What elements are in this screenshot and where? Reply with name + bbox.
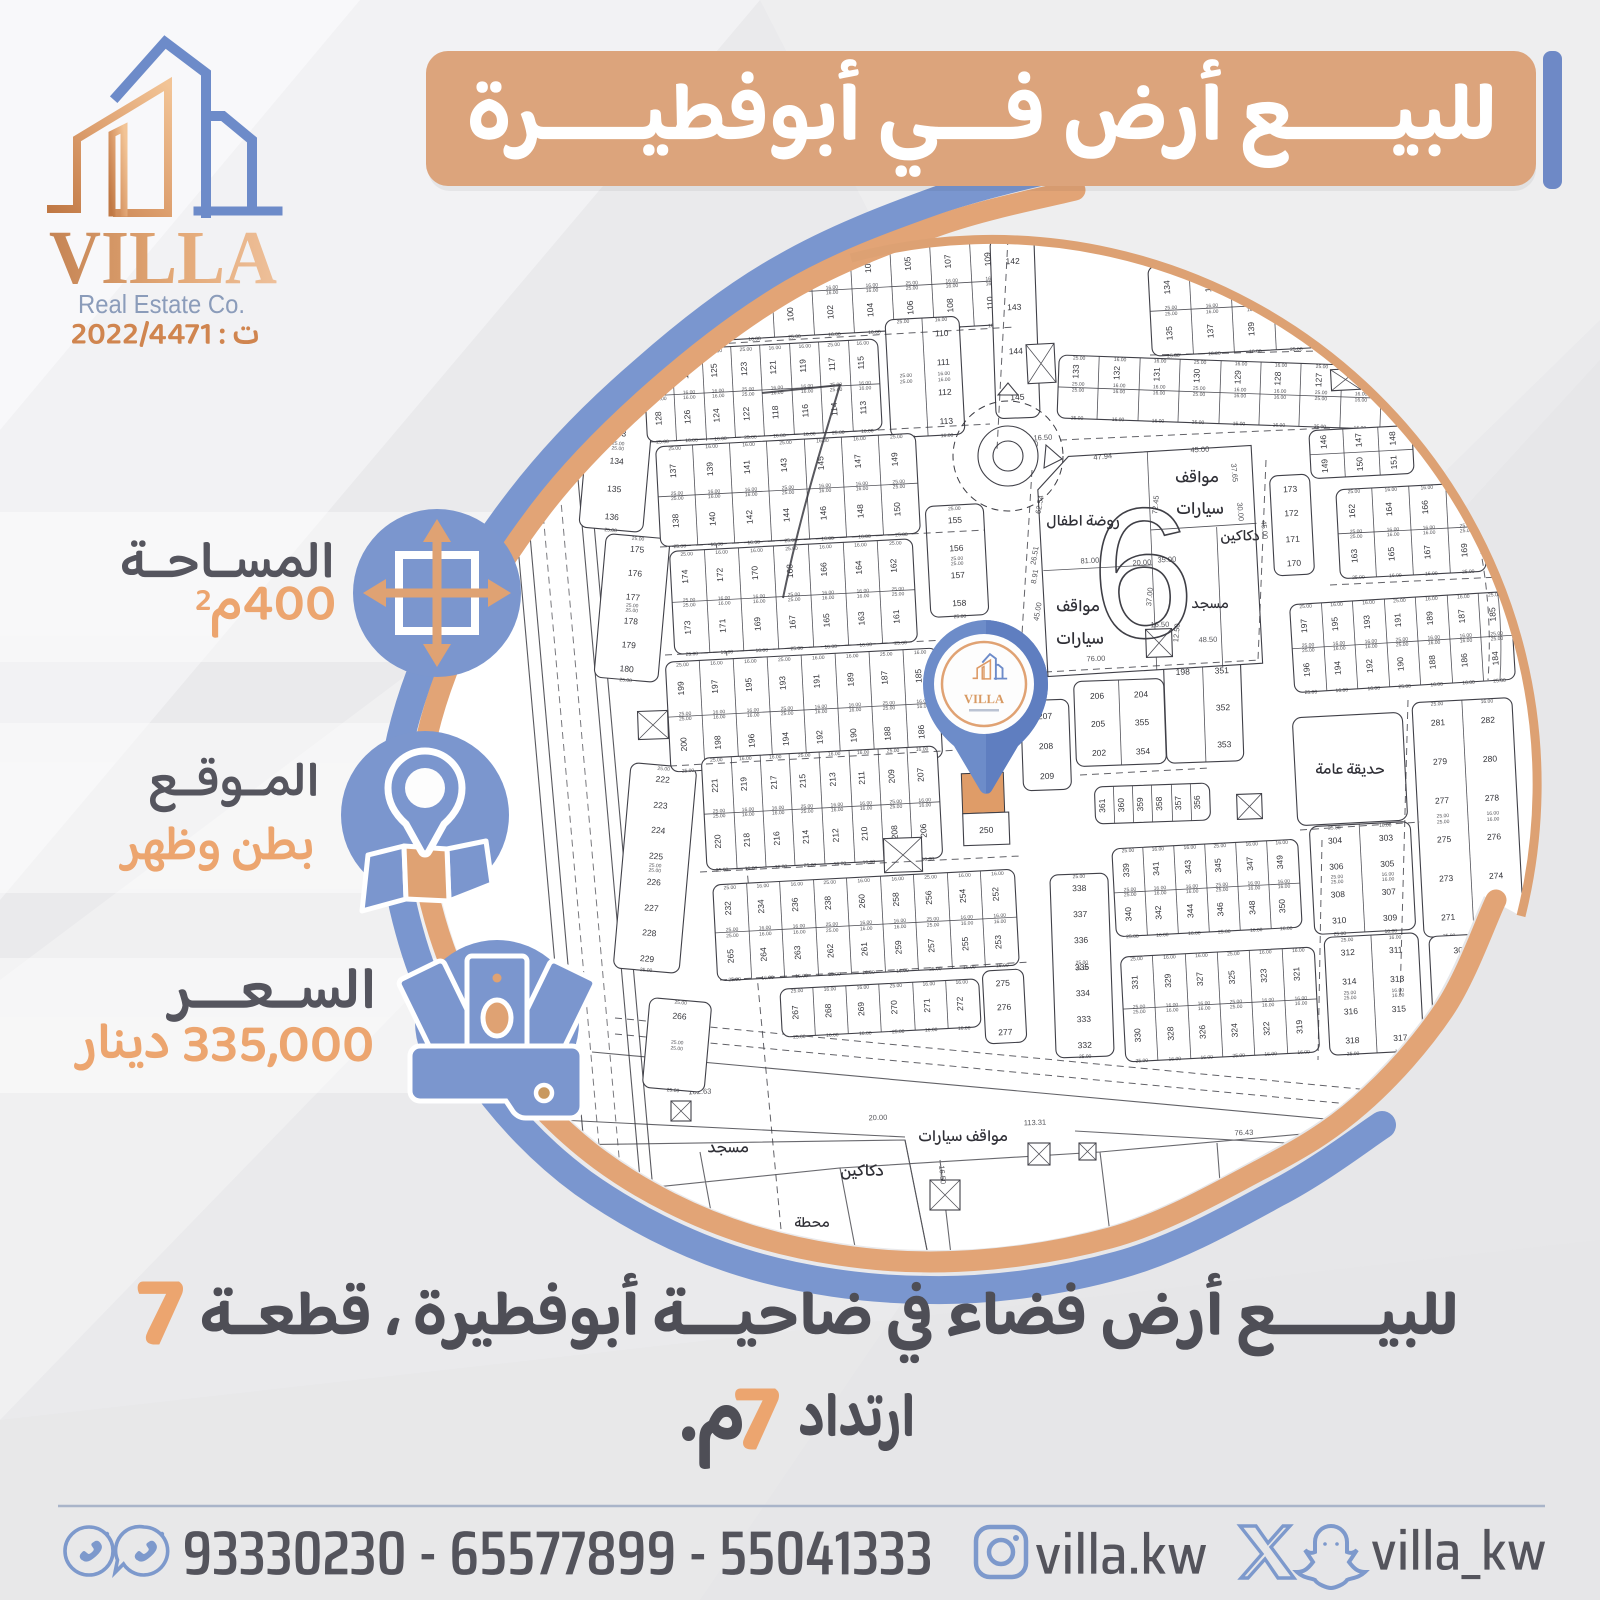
svg-text:25.00: 25.00 [657, 766, 670, 773]
svg-text:16.00: 16.00 [1428, 640, 1441, 647]
svg-text:115: 115 [855, 356, 866, 370]
svg-text:25.00: 25.00 [906, 285, 919, 292]
svg-text:25.00: 25.00 [1344, 995, 1357, 1002]
svg-text:187: 187 [879, 670, 890, 685]
svg-text:16.00: 16.00 [994, 919, 1007, 926]
svg-text:329: 329 [1162, 973, 1173, 988]
svg-text:25.00: 25.00 [880, 651, 893, 658]
svg-text:25.00: 25.00 [1072, 387, 1085, 393]
svg-text:25.00: 25.00 [1331, 879, 1344, 886]
svg-text:307: 307 [1381, 886, 1396, 897]
svg-text:16.00: 16.00 [1387, 532, 1400, 539]
svg-text:16.00: 16.00 [1333, 645, 1346, 652]
svg-text:16.00: 16.00 [1152, 846, 1165, 853]
svg-text:196: 196 [746, 733, 757, 748]
svg-text:45.00: 45.00 [1190, 445, 1209, 455]
svg-text:16.00: 16.00 [1233, 421, 1246, 427]
svg-text:25.00: 25.00 [897, 319, 910, 326]
svg-text:157: 157 [950, 570, 965, 581]
svg-text:16.00: 16.00 [849, 707, 862, 714]
svg-text:76.00: 76.00 [1086, 654, 1105, 664]
svg-text:346: 346 [1215, 902, 1226, 917]
svg-text:81.00: 81.00 [1080, 556, 1099, 566]
svg-text:25.00: 25.00 [1398, 684, 1411, 691]
svg-text:16.00: 16.00 [894, 924, 907, 931]
svg-text:188: 188 [882, 726, 893, 741]
svg-text:25.00: 25.00 [640, 967, 653, 974]
svg-text:324: 324 [1229, 1023, 1240, 1038]
svg-text:25.00: 25.00 [674, 1000, 687, 1007]
svg-text:132: 132 [1111, 365, 1121, 380]
svg-text:16.00: 16.00 [1166, 1007, 1179, 1014]
svg-text:155: 155 [948, 515, 963, 526]
svg-text:16.00: 16.00 [857, 878, 870, 885]
svg-text:16.00: 16.00 [853, 436, 866, 443]
svg-text:349: 349 [1274, 855, 1285, 870]
svg-text:16.00: 16.00 [866, 287, 879, 294]
svg-text:272: 272 [955, 996, 966, 1011]
svg-text:16.00: 16.00 [1384, 487, 1397, 494]
svg-text:25.00: 25.00 [1124, 892, 1137, 899]
svg-text:25.00: 25.00 [1193, 392, 1206, 398]
svg-text:173: 173 [682, 620, 693, 635]
svg-text:221: 221 [709, 778, 720, 793]
svg-text:16.00: 16.00 [1275, 362, 1288, 368]
svg-text:268: 268 [823, 1003, 834, 1018]
svg-text:303: 303 [1379, 832, 1394, 843]
svg-text:218: 218 [741, 832, 752, 847]
svg-text:110: 110 [935, 328, 949, 339]
svg-text:25.00: 25.00 [739, 346, 752, 353]
svg-text:332: 332 [1077, 1040, 1092, 1050]
svg-text:197: 197 [1298, 618, 1309, 633]
svg-text:351: 351 [1214, 665, 1229, 675]
svg-text:309: 309 [1383, 912, 1398, 923]
svg-text:275: 275 [1437, 834, 1452, 845]
svg-text:112: 112 [938, 387, 952, 398]
svg-text:16.00: 16.00 [1262, 1002, 1275, 1009]
svg-text:171: 171 [1285, 534, 1300, 545]
svg-text:16.00: 16.00 [1425, 571, 1438, 578]
svg-text:16.00: 16.00 [1273, 422, 1286, 428]
svg-text:227: 227 [644, 902, 659, 913]
svg-text:340: 340 [1123, 907, 1134, 922]
svg-text:16.00: 16.00 [1379, 822, 1392, 829]
svg-text:25.00: 25.00 [890, 434, 903, 441]
svg-text:254: 254 [957, 888, 968, 903]
svg-text:127: 127 [1313, 373, 1323, 388]
svg-text:25.00: 25.00 [889, 983, 902, 990]
svg-text:16.00: 16.00 [1195, 953, 1208, 960]
svg-text:16.00: 16.00 [710, 660, 723, 667]
svg-text:16.00: 16.00 [1365, 643, 1378, 650]
svg-text:341: 341 [1151, 861, 1162, 876]
svg-text:185: 185 [913, 668, 924, 683]
svg-text:16.00: 16.00 [714, 436, 727, 443]
svg-text:261: 261 [859, 942, 870, 957]
svg-text:136: 136 [604, 511, 619, 522]
svg-text:16.00: 16.00 [858, 534, 871, 541]
svg-text:25.00: 25.00 [604, 527, 617, 534]
svg-text:165: 165 [1386, 546, 1397, 561]
svg-text:25.00: 25.00 [666, 1087, 679, 1094]
svg-text:25.00: 25.00 [890, 804, 903, 811]
svg-text:276: 276 [997, 1002, 1012, 1013]
svg-text:25.00: 25.00 [827, 342, 840, 349]
svg-text:128: 128 [1272, 371, 1282, 386]
svg-text:257: 257 [926, 938, 937, 953]
svg-text:16.00: 16.00 [1389, 573, 1402, 580]
svg-text:210: 210 [859, 826, 870, 841]
svg-text:25.00: 25.00 [1218, 929, 1231, 936]
svg-text:48.50: 48.50 [1198, 635, 1217, 645]
svg-text:16.00: 16.00 [712, 393, 725, 400]
svg-text:16.00: 16.00 [1292, 947, 1305, 954]
svg-text:16.00: 16.00 [720, 649, 733, 656]
svg-text:276: 276 [1487, 831, 1502, 842]
svg-text:16.00: 16.00 [773, 433, 786, 440]
svg-text:318: 318 [1345, 1035, 1360, 1046]
svg-text:25.00: 25.00 [894, 640, 907, 647]
svg-text:16.00: 16.00 [1113, 389, 1126, 395]
svg-text:16.00: 16.00 [861, 428, 874, 435]
svg-text:179: 179 [621, 639, 636, 650]
svg-text:106: 106 [905, 300, 916, 315]
svg-text:16.00: 16.00 [1168, 1056, 1181, 1063]
svg-text:105: 105 [902, 256, 913, 271]
svg-text:16.50: 16.50 [1150, 620, 1169, 630]
svg-text:162: 162 [1347, 503, 1358, 518]
svg-text:200: 200 [678, 737, 689, 752]
svg-text:191: 191 [811, 674, 822, 689]
svg-text:16.00: 16.00 [683, 394, 696, 401]
svg-text:265: 265 [725, 949, 736, 964]
svg-text:277: 277 [1435, 795, 1450, 806]
svg-text:166: 166 [1419, 500, 1430, 515]
svg-text:150: 150 [892, 502, 903, 517]
svg-text:25.00: 25.00 [801, 808, 814, 815]
svg-text:310: 310 [1332, 915, 1347, 926]
svg-text:25.00: 25.00 [1462, 569, 1475, 576]
svg-text:25.00: 25.00 [826, 927, 839, 934]
svg-text:175: 175 [630, 544, 645, 555]
svg-text:169: 169 [1459, 543, 1470, 558]
svg-text:25.00: 25.00 [670, 1045, 683, 1052]
svg-text:206: 206 [918, 823, 929, 838]
svg-text:25.00: 25.00 [785, 546, 798, 553]
svg-text:111: 111 [937, 357, 951, 368]
svg-text:25.00: 25.00 [823, 880, 836, 887]
svg-text:16.50: 16.50 [937, 1165, 948, 1184]
svg-text:353: 353 [1217, 739, 1232, 749]
svg-text:122: 122 [741, 406, 752, 421]
svg-text:16.00: 16.00 [862, 970, 875, 977]
svg-text:273: 273 [1439, 873, 1454, 884]
svg-text:25.00: 25.00 [1232, 1053, 1245, 1060]
svg-text:308: 308 [1330, 889, 1345, 900]
svg-text:6: 6 [1085, 468, 1199, 679]
svg-text:25.00: 25.00 [830, 387, 843, 394]
svg-text:253: 253 [993, 934, 1004, 949]
svg-text:25.00: 25.00 [781, 711, 794, 718]
svg-text:141: 141 [741, 460, 752, 475]
svg-text:25.00: 25.00 [648, 867, 661, 874]
svg-text:25.00: 25.00 [1431, 701, 1444, 708]
svg-text:305: 305 [1380, 858, 1395, 869]
svg-text:25.00: 25.00 [632, 536, 645, 543]
svg-text:16.00: 16.00 [860, 926, 873, 933]
svg-text:16.00: 16.00 [1389, 934, 1402, 941]
svg-text:16.00: 16.00 [946, 283, 959, 290]
svg-text:16.00: 16.00 [772, 810, 785, 817]
svg-text:25.00: 25.00 [728, 977, 741, 984]
svg-text:16.00: 16.00 [821, 536, 834, 543]
svg-text:279: 279 [1433, 756, 1448, 767]
svg-text:25.00: 25.00 [625, 607, 638, 614]
svg-text:176: 176 [628, 568, 643, 579]
svg-text:16.00: 16.00 [1362, 600, 1375, 607]
svg-text:211: 211 [856, 771, 867, 785]
svg-text:229: 229 [640, 953, 655, 964]
svg-text:16.00: 16.00 [826, 290, 839, 297]
svg-text:25.00: 25.00 [726, 933, 739, 940]
svg-text:214: 214 [800, 829, 811, 844]
svg-text:16.00: 16.00 [941, 433, 954, 440]
svg-text:102: 102 [825, 305, 836, 320]
svg-text:271: 271 [922, 998, 933, 1013]
svg-text:139: 139 [704, 461, 715, 476]
svg-text:76.43: 76.43 [1234, 1128, 1253, 1138]
svg-text:195: 195 [743, 677, 754, 692]
svg-text:264: 264 [758, 947, 769, 962]
svg-text:199: 199 [675, 681, 686, 696]
svg-text:16.00: 16.00 [1153, 390, 1166, 396]
svg-text:113: 113 [939, 416, 953, 427]
svg-text:16.00: 16.00 [1235, 361, 1248, 367]
svg-text:16.00: 16.00 [831, 807, 844, 814]
svg-text:190: 190 [1395, 656, 1406, 671]
svg-text:164: 164 [853, 560, 864, 575]
svg-text:25.00: 25.00 [1491, 636, 1504, 643]
svg-text:149: 149 [1319, 458, 1330, 473]
svg-text:16.00: 16.00 [753, 598, 766, 605]
svg-text:209: 209 [1040, 771, 1055, 781]
svg-text:16.00: 16.00 [958, 1025, 971, 1032]
svg-text:213: 213 [827, 772, 838, 787]
svg-text:222: 222 [655, 774, 670, 785]
svg-text:25.00: 25.00 [951, 561, 964, 568]
svg-text:16.00: 16.00 [1264, 1051, 1277, 1058]
svg-text:137: 137 [1205, 324, 1216, 339]
svg-text:347: 347 [1244, 856, 1255, 871]
svg-text:16.00: 16.00 [747, 540, 760, 547]
svg-text:178: 178 [623, 615, 638, 626]
svg-text:184: 184 [1490, 651, 1501, 666]
svg-text:16.00: 16.00 [819, 544, 832, 551]
svg-text:16.00: 16.00 [1295, 1000, 1308, 1007]
svg-text:25.00: 25.00 [1122, 848, 1135, 855]
svg-text:270: 270 [889, 1000, 900, 1015]
svg-text:325: 325 [1226, 970, 1237, 985]
svg-text:35.00: 35.00 [1157, 555, 1176, 565]
svg-text:16.00: 16.00 [955, 979, 968, 986]
svg-text:328: 328 [1165, 1026, 1176, 1041]
svg-text:180: 180 [619, 663, 634, 674]
svg-text:16.00: 16.00 [914, 650, 927, 657]
svg-text:108: 108 [945, 298, 956, 313]
svg-text:16.00: 16.00 [710, 541, 723, 548]
svg-text:16.00: 16.00 [857, 593, 870, 600]
svg-text:25.00: 25.00 [671, 495, 684, 502]
svg-text:16.00: 16.00 [1186, 888, 1199, 895]
svg-text:16.00: 16.00 [1250, 927, 1263, 934]
svg-text:25.00: 25.00 [1352, 574, 1365, 581]
svg-text:133: 133 [1070, 364, 1080, 379]
svg-text:16.00: 16.00 [859, 385, 872, 392]
svg-text:275: 275 [995, 978, 1010, 989]
svg-text:16.00: 16.00 [1206, 309, 1219, 316]
svg-text:25.00: 25.00 [793, 1034, 806, 1041]
svg-text:258: 258 [890, 892, 901, 907]
svg-text:163: 163 [1349, 548, 1360, 563]
svg-text:16.00: 16.00 [1335, 687, 1348, 694]
svg-text:356: 356 [1192, 795, 1202, 810]
svg-text:25.00: 25.00 [1073, 874, 1086, 880]
svg-text:186: 186 [916, 724, 927, 739]
svg-text:336: 336 [1074, 935, 1089, 945]
svg-text:37.65: 37.65 [1229, 463, 1240, 482]
svg-text:16.00: 16.00 [826, 1032, 839, 1039]
svg-text:16.00: 16.00 [1367, 685, 1380, 692]
svg-text:16.00: 16.00 [705, 444, 718, 451]
svg-text:16.00: 16.00 [798, 343, 811, 350]
svg-text:25.00: 25.00 [611, 445, 624, 452]
svg-text:25.00: 25.00 [679, 716, 692, 723]
svg-text:25.00: 25.00 [804, 862, 817, 869]
svg-text:16.00: 16.00 [790, 881, 803, 888]
svg-text:269: 269 [856, 1001, 867, 1016]
svg-text:25.00: 25.00 [1299, 603, 1312, 610]
svg-text:190: 190 [848, 728, 859, 743]
svg-text:25.00: 25.00 [1230, 1004, 1243, 1011]
svg-text:314: 314 [1342, 976, 1357, 987]
svg-text:174: 174 [679, 569, 690, 584]
svg-text:45.00: 45.00 [1259, 520, 1270, 539]
svg-text:142: 142 [1005, 256, 1020, 266]
svg-text:16.00: 16.00 [742, 442, 755, 449]
svg-text:16.00: 16.00 [961, 920, 974, 927]
svg-text:16.00: 16.00 [744, 658, 757, 665]
svg-text:16.00: 16.00 [1330, 602, 1343, 609]
svg-text:358: 358 [1154, 796, 1164, 811]
svg-text:232: 232 [723, 901, 734, 916]
svg-text:16.00: 16.00 [938, 377, 951, 384]
svg-text:16.00: 16.00 [1114, 357, 1127, 363]
svg-text:322: 322 [1261, 1021, 1272, 1036]
svg-text:148: 148 [1387, 431, 1398, 446]
svg-text:16.00: 16.00 [761, 975, 774, 982]
svg-text:25.00: 25.00 [1437, 819, 1450, 826]
svg-text:25.00: 25.00 [895, 532, 908, 539]
svg-text:140: 140 [707, 511, 718, 526]
svg-text:25.00: 25.00 [1192, 420, 1205, 426]
svg-text:177: 177 [625, 591, 640, 602]
svg-text:186: 186 [1459, 653, 1470, 668]
svg-text:337: 337 [1073, 909, 1088, 919]
svg-text:16.00: 16.00 [1183, 845, 1196, 852]
svg-text:25.00: 25.00 [954, 614, 967, 621]
svg-text:25.00: 25.00 [723, 885, 736, 892]
svg-text:142: 142 [744, 509, 755, 524]
svg-text:16.00: 16.00 [1423, 530, 1436, 537]
svg-text:16.00: 16.00 [919, 802, 932, 809]
svg-text:188: 188 [1427, 655, 1438, 670]
svg-text:193: 193 [1361, 614, 1372, 629]
svg-text:119: 119 [797, 359, 808, 373]
svg-text:263: 263 [792, 945, 803, 960]
svg-text:25.00: 25.00 [1396, 642, 1409, 649]
svg-text:16.00: 16.00 [891, 876, 904, 883]
svg-text:125: 125 [709, 363, 720, 378]
svg-text:16.00: 16.00 [1354, 397, 1367, 403]
svg-text:25.00: 25.00 [1314, 424, 1327, 430]
svg-text:16.00: 16.00 [991, 871, 1004, 878]
svg-text:342: 342 [1153, 905, 1164, 920]
svg-text:Real Estate Co.: Real Estate Co. [78, 289, 245, 319]
svg-text:113: 113 [858, 400, 869, 414]
svg-text:163: 163 [856, 611, 867, 626]
svg-text:197: 197 [709, 679, 720, 694]
svg-text:25.00: 25.00 [1076, 966, 1089, 972]
svg-text:25.00: 25.00 [1347, 1051, 1360, 1058]
svg-text:144: 144 [1009, 346, 1024, 356]
svg-text:147: 147 [852, 454, 863, 469]
svg-text:334: 334 [1076, 988, 1091, 998]
svg-text:343: 343 [1182, 859, 1193, 874]
svg-text:16.00: 16.00 [718, 600, 731, 607]
svg-text:359: 359 [1135, 797, 1145, 812]
svg-text:104: 104 [865, 302, 876, 317]
svg-text:126: 126 [682, 409, 693, 424]
svg-text:16.00: 16.00 [747, 712, 760, 719]
svg-text:16.00: 16.00 [922, 981, 935, 988]
svg-text:16.00: 16.00 [1457, 594, 1470, 601]
svg-text:193: 193 [777, 675, 788, 690]
svg-text:315: 315 [1391, 1003, 1406, 1014]
svg-text:191: 191 [1392, 613, 1403, 628]
svg-text:172: 172 [1284, 508, 1299, 519]
svg-text:339: 339 [1121, 863, 1132, 878]
svg-text:16.00: 16.00 [1163, 954, 1176, 961]
svg-text:25.00: 25.00 [1133, 1009, 1146, 1016]
svg-text:16.00: 16.00 [863, 859, 876, 866]
svg-text:208: 208 [1039, 741, 1054, 751]
svg-text:138: 138 [670, 513, 681, 528]
svg-text:25.00: 25.00 [790, 646, 803, 653]
svg-text:16.00: 16.00 [856, 486, 869, 493]
svg-text:260: 260 [856, 894, 867, 909]
svg-text:167: 167 [787, 615, 798, 630]
svg-text:171: 171 [717, 618, 728, 633]
svg-text:16.00: 16.00 [856, 340, 869, 347]
svg-text:16.00: 16.00 [742, 812, 755, 819]
svg-text:255: 255 [960, 936, 971, 951]
svg-text:143: 143 [1007, 302, 1022, 312]
svg-text:144: 144 [781, 508, 792, 523]
svg-text:338: 338 [1072, 883, 1087, 893]
svg-text:25.00: 25.00 [1304, 689, 1317, 696]
svg-text:16.00: 16.00 [1156, 932, 1169, 939]
